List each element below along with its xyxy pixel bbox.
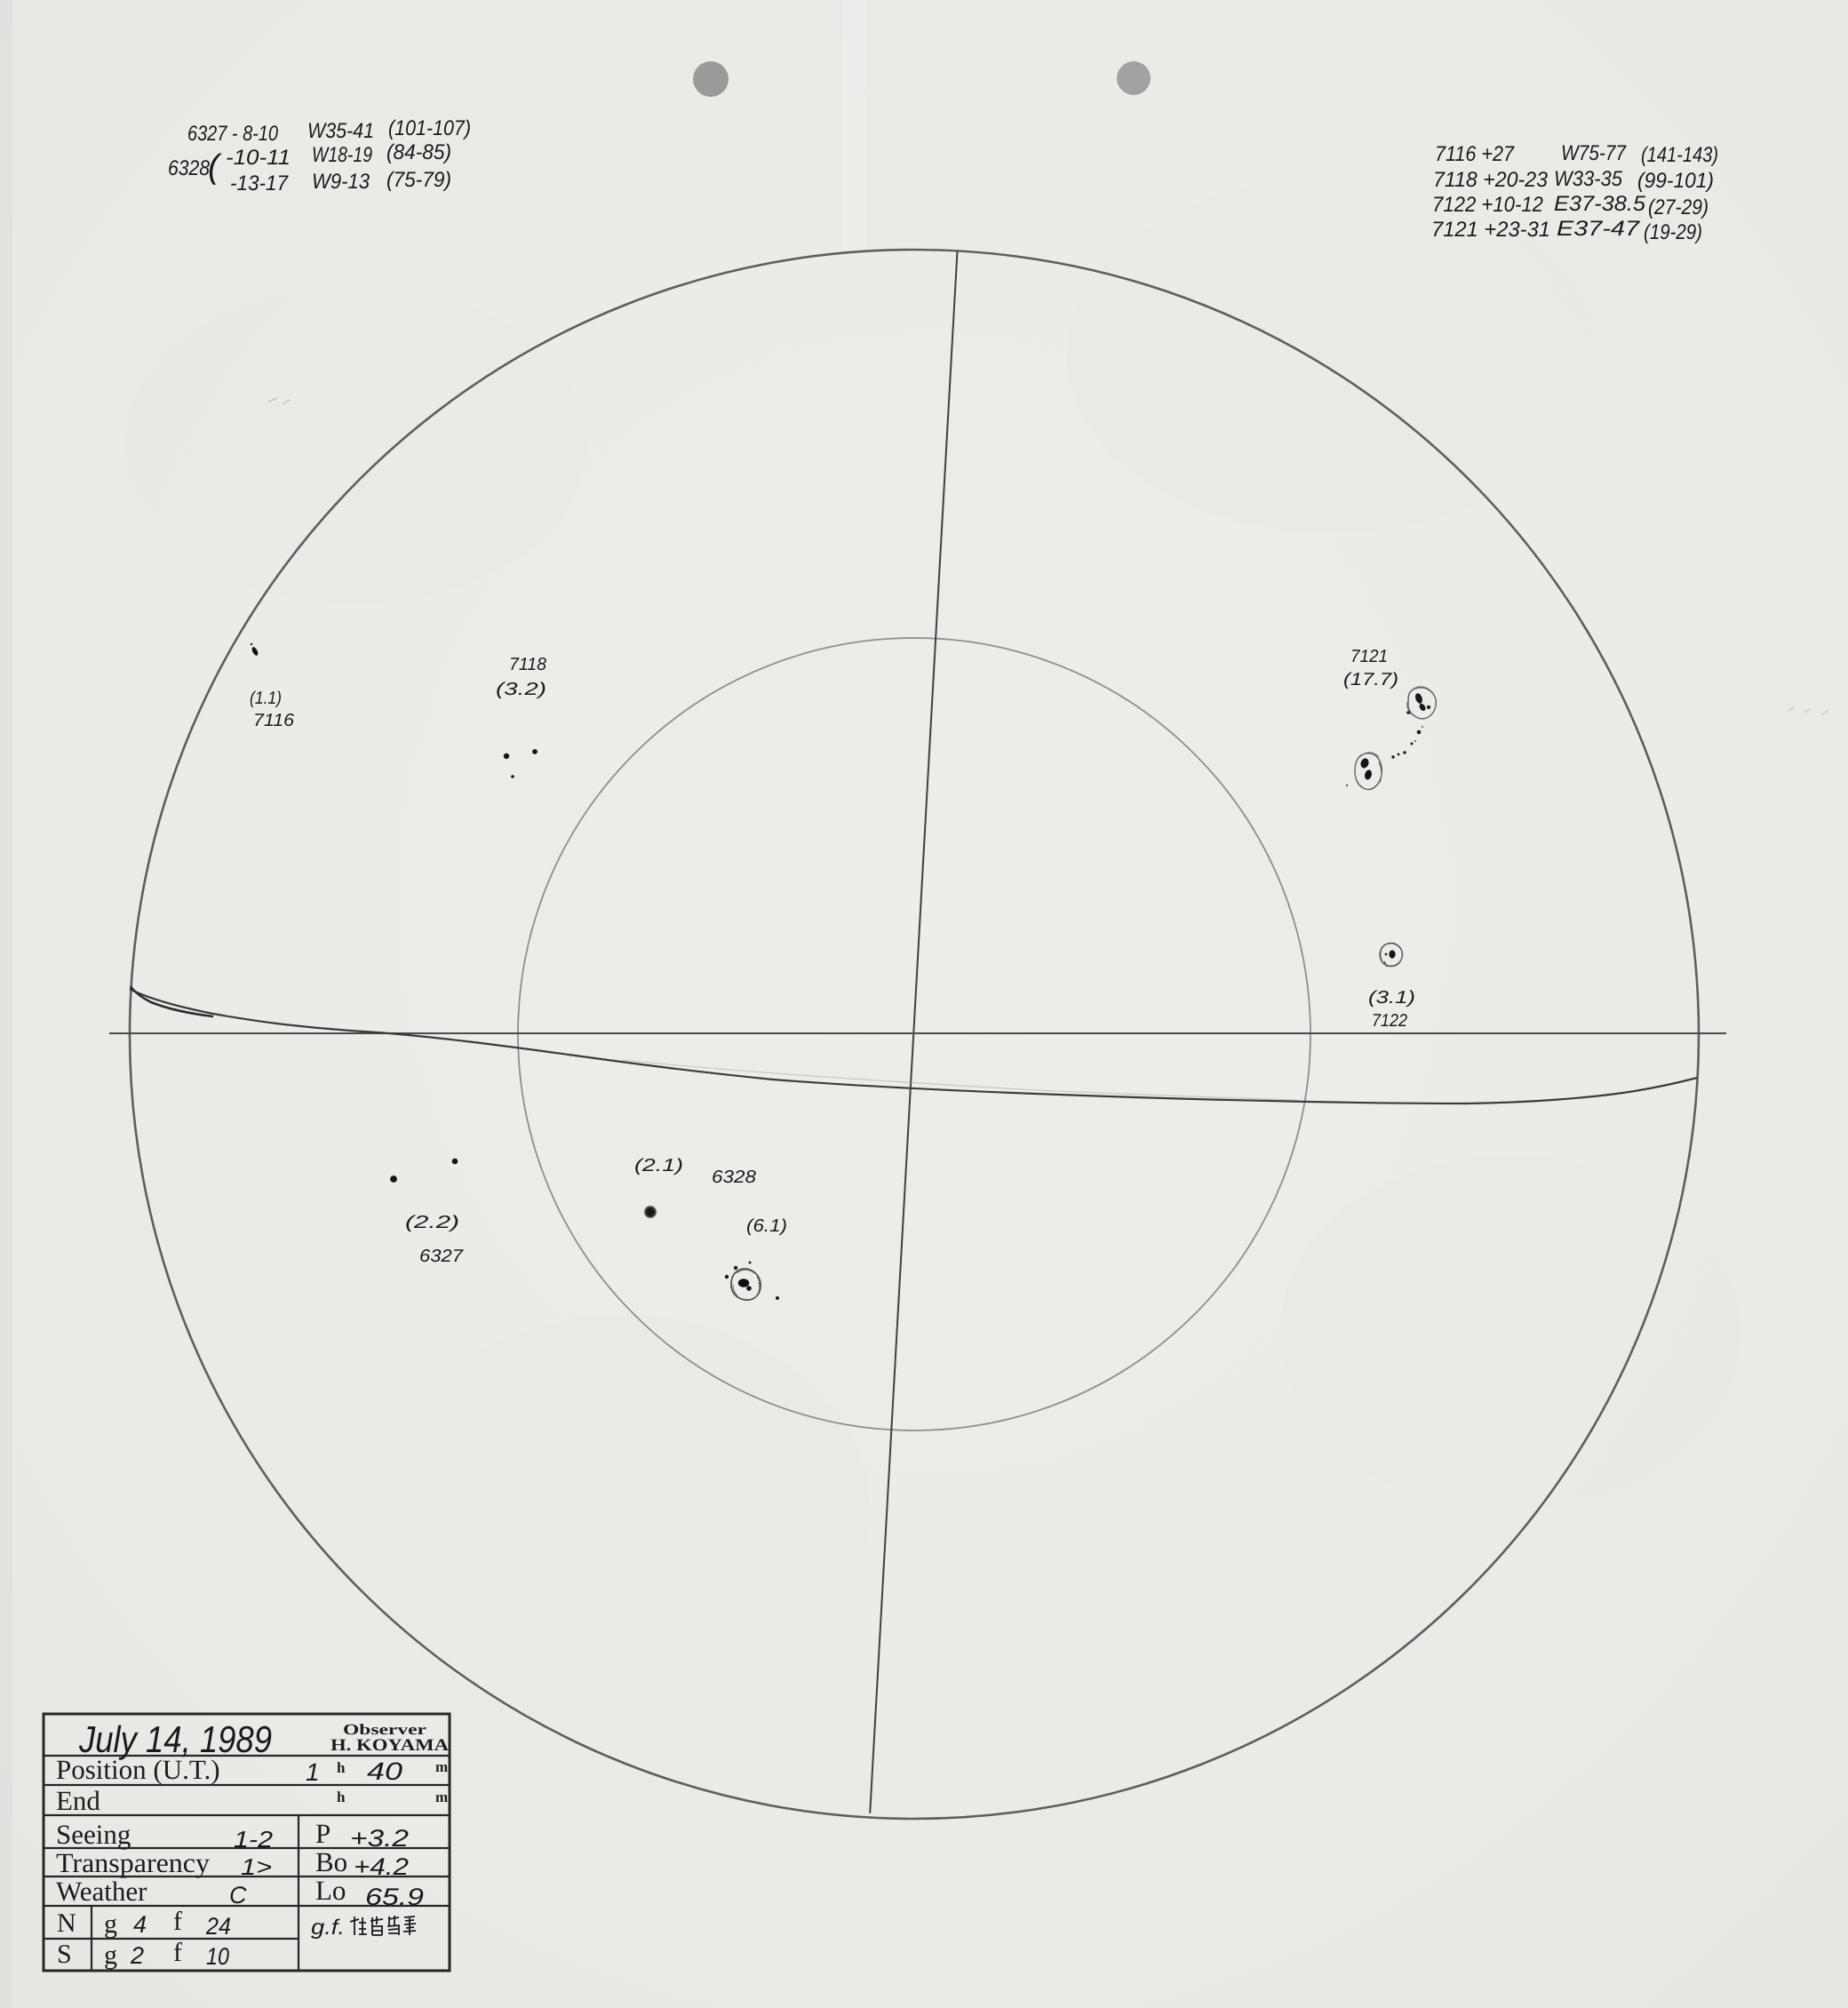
svg-text:W75-77: W75-77: [1561, 141, 1627, 165]
svg-text:(101-107): (101-107): [388, 116, 471, 140]
svg-text:(99-101): (99-101): [1637, 169, 1714, 193]
svg-text:P: P: [315, 1818, 331, 1849]
svg-text:(2.2): (2.2): [405, 1213, 459, 1232]
svg-text:7122: 7122: [1372, 1011, 1407, 1031]
svg-text:(2.1): (2.1): [634, 1156, 683, 1175]
svg-text:(84-85): (84-85): [386, 140, 451, 164]
svg-text:-10-11: -10-11: [226, 146, 291, 170]
svg-text:S: S: [57, 1940, 72, 1969]
svg-text:6327: 6327: [419, 1247, 464, 1266]
svg-text:4: 4: [133, 1911, 147, 1938]
svg-text:(17.7): (17.7): [1343, 670, 1398, 689]
svg-text:65.9: 65.9: [365, 1884, 424, 1910]
svg-text:Bo: Bo: [315, 1846, 347, 1877]
svg-text:H. KOYAMA: H. KOYAMA: [331, 1736, 449, 1755]
svg-text:10: 10: [206, 1943, 229, 1970]
svg-text:h: h: [337, 1759, 346, 1776]
svg-text:g.f.: g.f.: [311, 1916, 345, 1940]
svg-text:(1.1): (1.1): [250, 689, 282, 708]
svg-text:f: f: [173, 1907, 182, 1936]
svg-text:Weather: Weather: [56, 1876, 147, 1907]
svg-text:7118: 7118: [509, 655, 546, 674]
svg-text:(141-143): (141-143): [1641, 143, 1718, 167]
svg-text:m: m: [435, 1758, 448, 1775]
svg-text:1>: 1>: [241, 1853, 272, 1880]
svg-text:Position (U.T.): Position (U.T.): [56, 1754, 220, 1785]
svg-text:h: h: [337, 1789, 346, 1805]
svg-text:E37-47: E37-47: [1557, 217, 1641, 241]
svg-text:Lo: Lo: [315, 1875, 346, 1906]
svg-text:Transparency: Transparency: [56, 1847, 211, 1878]
svg-text:(27-29): (27-29): [1648, 195, 1709, 219]
svg-text:f: f: [173, 1938, 182, 1967]
svg-text:7122 +10-12: 7122 +10-12: [1432, 193, 1543, 217]
svg-text:(75-79): (75-79): [386, 168, 451, 192]
svg-text:(3.1): (3.1): [1368, 988, 1415, 1008]
svg-text:6328: 6328: [712, 1167, 756, 1187]
svg-text:W35-41: W35-41: [307, 119, 374, 143]
svg-text:(3.2): (3.2): [496, 680, 546, 699]
svg-text:7116: 7116: [253, 711, 295, 730]
svg-text:End: End: [56, 1785, 100, 1816]
svg-text:W9-13: W9-13: [312, 170, 370, 194]
svg-text:W33-35: W33-35: [1554, 167, 1623, 191]
svg-text:(19-29): (19-29): [1644, 220, 1702, 244]
svg-text:g: g: [104, 1909, 117, 1939]
svg-text:7118 +20-23: 7118 +20-23: [1433, 168, 1549, 192]
svg-text:2: 2: [130, 1942, 144, 1969]
svg-text:6327 - 8-10: 6327 - 8-10: [187, 122, 279, 146]
svg-text:7121: 7121: [1350, 647, 1388, 666]
svg-text:24: 24: [205, 1913, 231, 1940]
svg-text:W18-19: W18-19: [312, 143, 372, 167]
svg-text:(6.1): (6.1): [746, 1216, 787, 1236]
svg-text:N: N: [57, 1908, 76, 1938]
svg-text:Seeing: Seeing: [56, 1819, 131, 1850]
svg-text:E37-38.5: E37-38.5: [1554, 192, 1646, 216]
svg-text:1: 1: [306, 1758, 320, 1786]
svg-text:m: m: [435, 1789, 448, 1805]
svg-text:-13-17: -13-17: [230, 171, 290, 195]
svg-text:40: 40: [367, 1757, 403, 1785]
svg-text:g: g: [104, 1940, 117, 1970]
svg-text:7121 +23-31: 7121 +23-31: [1431, 218, 1550, 242]
svg-text:+4.2: +4.2: [354, 1853, 409, 1880]
svg-text:C: C: [229, 1882, 247, 1908]
svg-text:7116 +27: 7116 +27: [1435, 142, 1515, 166]
svg-text:+3.2: +3.2: [350, 1825, 409, 1852]
svg-text:1-2: 1-2: [234, 1826, 274, 1853]
svg-text:6328: 6328: [168, 156, 211, 180]
